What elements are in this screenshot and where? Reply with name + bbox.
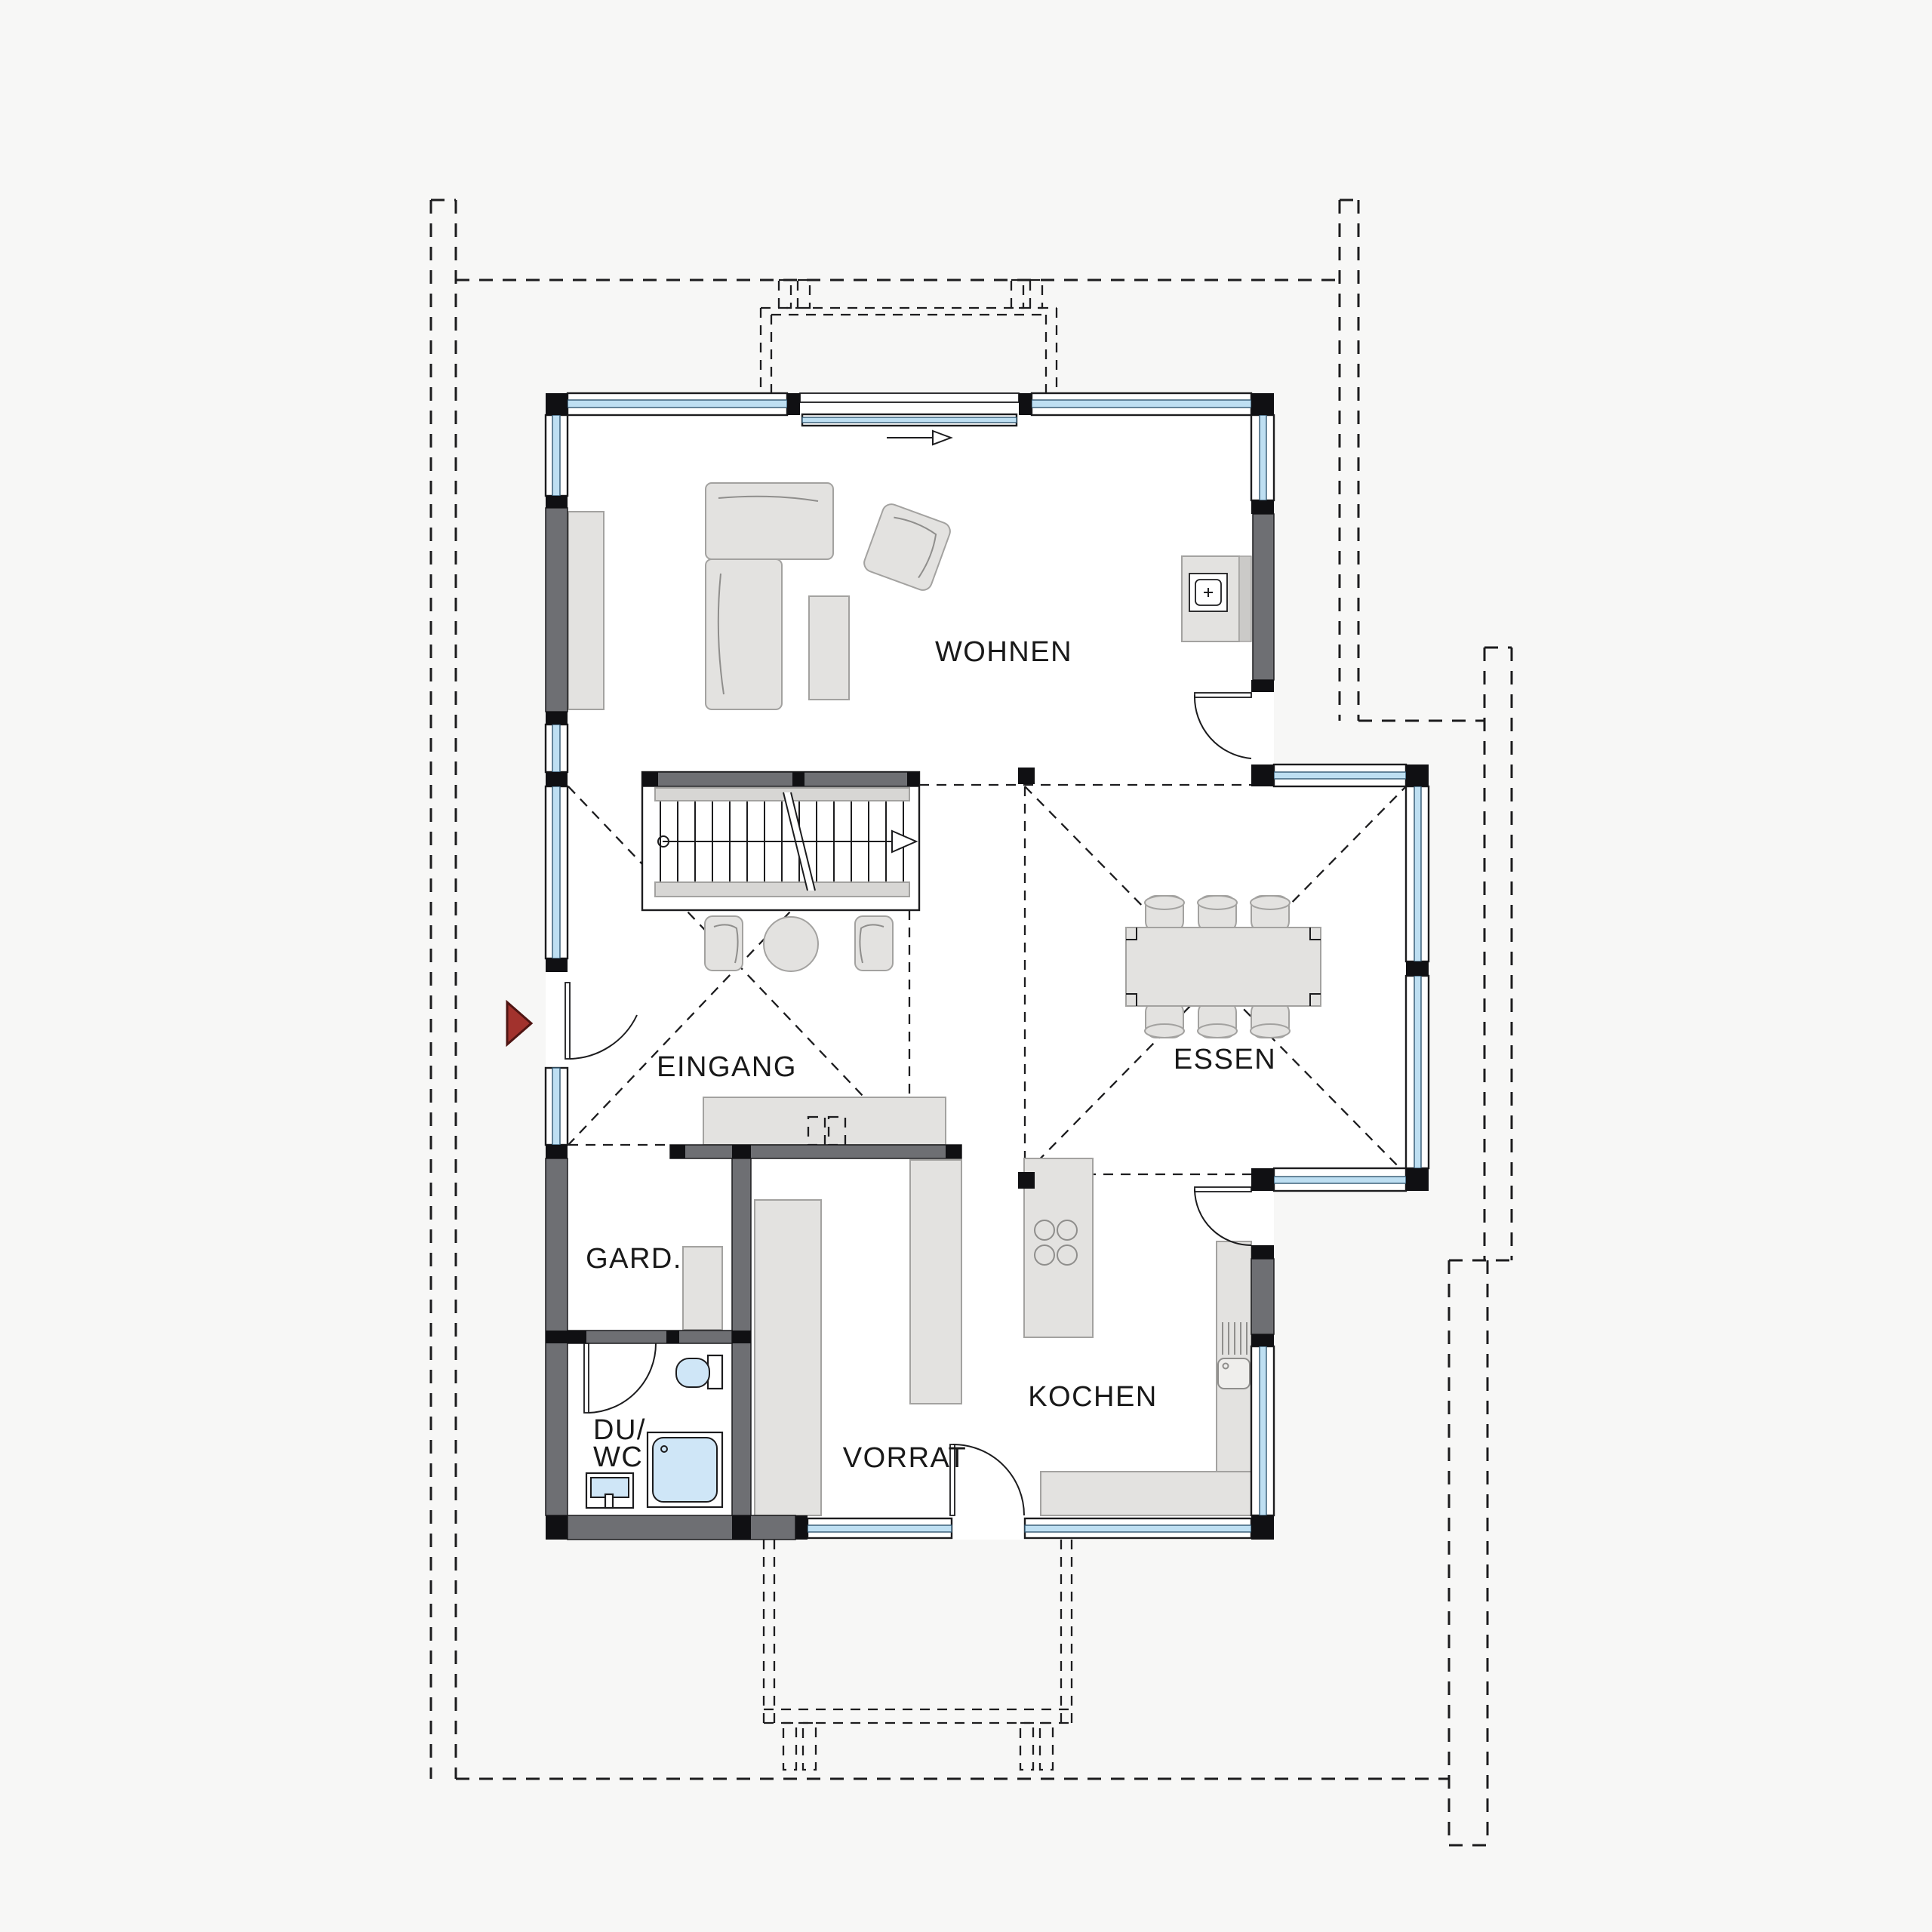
washbasin-icon [586,1473,633,1508]
room-label-essen: ESSEN [1174,1044,1276,1075]
fireplace-icon [1182,556,1251,641]
room-label-wohnen: WOHNEN [935,636,1072,668]
wardrobe-cabinet [683,1247,722,1330]
pantry-shelf-left [755,1200,821,1515]
floor-plan-canvas: WOHNEN ESSEN EINGANG GARD. DU/ WC VORRAT… [0,0,1932,1932]
pantry-shelf-right [910,1160,961,1404]
room-label-wc: WC [593,1441,643,1473]
balcony-outline-dashed [761,280,1057,393]
entry-seating [705,916,893,971]
entrance-arrow-icon [507,1002,531,1044]
wall-cupboard [568,512,604,709]
room-label-kochen: KOCHEN [1028,1381,1158,1413]
side-table [809,596,849,700]
room-label-gard: GARD. [586,1243,682,1275]
toilet-icon [676,1355,722,1389]
sink-icon [1218,1358,1250,1389]
room-label-vorrat: VORRAT [843,1442,968,1474]
room-label-eingang: EINGANG [657,1051,797,1083]
stair-icon [642,772,919,910]
terrace-outline-dashed [764,1540,1072,1770]
shower-icon [648,1432,722,1507]
